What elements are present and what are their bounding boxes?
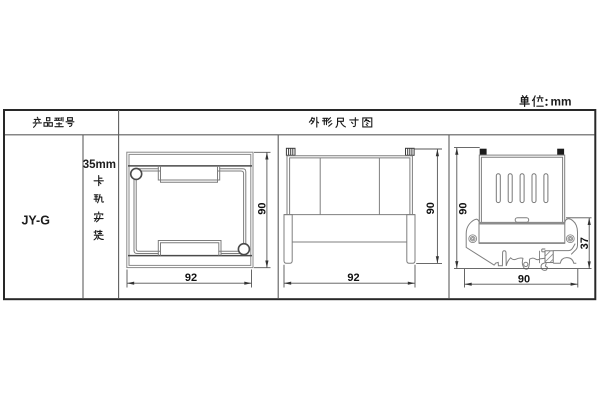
svg-text:mm: mm <box>551 95 572 109</box>
svg-text:90: 90 <box>458 202 470 214</box>
svg-text:90: 90 <box>256 202 268 214</box>
svg-text:JY-G: JY-G <box>21 213 50 227</box>
svg-text:90: 90 <box>518 274 530 286</box>
svg-text:92: 92 <box>347 272 359 284</box>
svg-text:37: 37 <box>579 237 591 249</box>
svg-text:35mm: 35mm <box>83 159 116 171</box>
svg-text:92: 92 <box>185 272 197 284</box>
svg-text:90: 90 <box>425 202 437 214</box>
